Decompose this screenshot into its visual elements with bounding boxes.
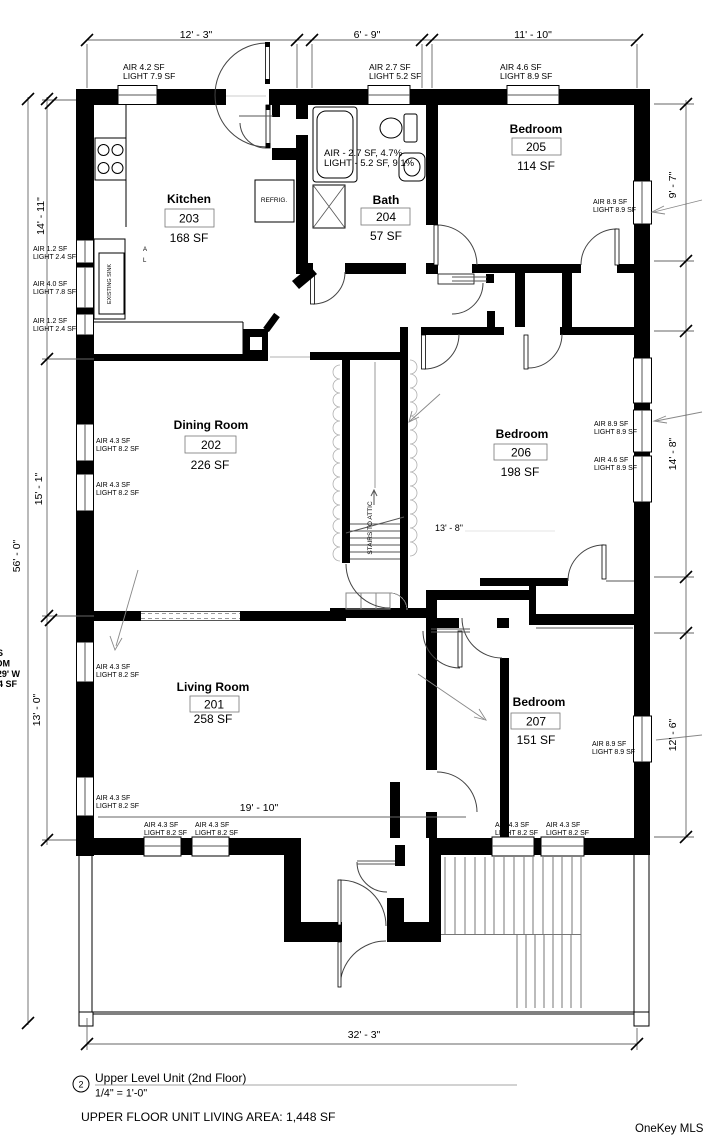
svg-text:AIR 4.3 SF: AIR 4.3 SF xyxy=(195,822,229,829)
svg-text:LIGHT 2.4 SF: LIGHT 2.4 SF xyxy=(33,254,76,261)
svg-text:AIR 4.3 SF: AIR 4.3 SF xyxy=(546,822,580,829)
svg-text:12' - 3": 12' - 3" xyxy=(180,29,213,41)
svg-text:LIGHT 8.2 SF: LIGHT 8.2 SF xyxy=(96,803,139,810)
svg-text:LIGHT 8.2 SF: LIGHT 8.2 SF xyxy=(96,490,139,497)
svg-text:202: 202 xyxy=(201,438,221,452)
svg-text:13' - 8": 13' - 8" xyxy=(435,523,463,533)
svg-text:Dining Room: Dining Room xyxy=(174,418,249,432)
svg-text:LIGHT 7.9 SF: LIGHT 7.9 SF xyxy=(123,71,175,81)
svg-text:AIR 4.3 SF: AIR 4.3 SF xyxy=(96,664,130,671)
svg-text:LIGHT - 5.2 SF, 9.1%: LIGHT - 5.2 SF, 9.1% xyxy=(324,158,415,169)
svg-text:204: 204 xyxy=(376,210,396,224)
svg-text:LIGHT 8.9 SF: LIGHT 8.9 SF xyxy=(594,429,637,436)
svg-text:29' W: 29' W xyxy=(0,669,20,679)
svg-text:REFRIG.: REFRIG. xyxy=(261,197,288,204)
svg-text:Bedroom: Bedroom xyxy=(510,122,563,136)
svg-text:Kitchen: Kitchen xyxy=(167,192,211,206)
svg-text:Bath: Bath xyxy=(373,193,400,207)
svg-text:Bedroom: Bedroom xyxy=(513,695,566,709)
svg-text:151 SF: 151 SF xyxy=(517,733,556,747)
svg-text:1/4" = 1'-0": 1/4" = 1'-0" xyxy=(95,1088,147,1100)
svg-text:AIR 4.0 SF: AIR 4.0 SF xyxy=(33,281,67,288)
svg-text:201: 201 xyxy=(204,698,224,712)
svg-text:LIGHT 8.2 SF: LIGHT 8.2 SF xyxy=(96,446,139,453)
svg-text:Bedroom: Bedroom xyxy=(496,427,549,441)
svg-text:2: 2 xyxy=(78,1080,83,1090)
svg-text:203: 203 xyxy=(179,212,199,226)
svg-text:AIR 1.2 SF: AIR 1.2 SF xyxy=(33,246,67,253)
svg-text:198 SF: 198 SF xyxy=(501,465,540,479)
svg-text:LIGHT 8.2 SF: LIGHT 8.2 SF xyxy=(195,830,238,837)
svg-text:13' - 0": 13' - 0" xyxy=(31,693,43,726)
svg-text:AIR 8.9 SF: AIR 8.9 SF xyxy=(592,741,626,748)
svg-text:LIGHT 8.2 SF: LIGHT 8.2 SF xyxy=(546,830,589,837)
svg-text:AIR 1.2 SF: AIR 1.2 SF xyxy=(33,318,67,325)
svg-text:258 SF: 258 SF xyxy=(194,712,233,726)
svg-text:AIR 4.3 SF: AIR 4.3 SF xyxy=(96,438,130,445)
svg-text:LIGHT 8.9 SF: LIGHT 8.9 SF xyxy=(593,207,636,214)
svg-text:AIR 8.9 SF: AIR 8.9 SF xyxy=(594,421,628,428)
svg-text:LIGHT 2.4 SF: LIGHT 2.4 SF xyxy=(33,326,76,333)
svg-text:57 SF: 57 SF xyxy=(370,229,402,243)
svg-text:LIGHT 8.9 SF: LIGHT 8.9 SF xyxy=(592,749,635,756)
svg-text:226 SF: 226 SF xyxy=(191,458,230,472)
svg-text:19' - 10": 19' - 10" xyxy=(240,802,279,814)
svg-text:AIR 4.6 SF: AIR 4.6 SF xyxy=(594,457,628,464)
svg-text:6' - 9": 6' - 9" xyxy=(354,29,381,41)
svg-text:LIGHT 8.9 SF: LIGHT 8.9 SF xyxy=(594,465,637,472)
svg-text:56' - 0": 56' - 0" xyxy=(11,539,23,572)
svg-text:UPPER FLOOR UNIT LIVING AREA:: UPPER FLOOR UNIT LIVING AREA: 1,448 SF xyxy=(81,1110,335,1124)
svg-text:EXISTING SINK: EXISTING SINK xyxy=(107,264,113,304)
svg-text:LIGHT 8.2 SF: LIGHT 8.2 SF xyxy=(495,830,538,837)
svg-text:14' - 11": 14' - 11" xyxy=(35,197,47,235)
svg-text:AIR 4.3 SF: AIR 4.3 SF xyxy=(96,795,130,802)
svg-text:LIGHT 7.8 SF: LIGHT 7.8 SF xyxy=(33,289,76,296)
svg-text:9' - 7": 9' - 7" xyxy=(667,171,679,198)
svg-text:LIGHT 8.9 SF: LIGHT 8.9 SF xyxy=(500,71,552,81)
svg-text:15' - 1": 15' - 1" xyxy=(33,472,45,505)
svg-text:AIR 4.3 SF: AIR 4.3 SF xyxy=(144,822,178,829)
svg-text:4 SF: 4 SF xyxy=(0,679,17,689)
svg-text:AIR 4.3 SF: AIR 4.3 SF xyxy=(96,482,130,489)
svg-text:114 SF: 114 SF xyxy=(517,159,555,173)
svg-text:LIGHT 5.2 SF: LIGHT 5.2 SF xyxy=(369,71,421,81)
svg-text:207: 207 xyxy=(526,715,546,729)
svg-text:Upper Level Unit (2nd Floor): Upper Level Unit (2nd Floor) xyxy=(95,1071,246,1085)
svg-text:32' - 3": 32' - 3" xyxy=(348,1029,381,1041)
svg-text:14' - 8": 14' - 8" xyxy=(667,437,679,470)
svg-text:A: A xyxy=(143,247,147,253)
svg-text:OM: OM xyxy=(0,659,10,669)
svg-text:OneKey MLS: OneKey MLS xyxy=(635,1123,704,1135)
svg-text:S: S xyxy=(0,648,3,658)
svg-text:LIGHT 8.2 SF: LIGHT 8.2 SF xyxy=(96,672,139,679)
svg-text:STAIRS TO ATTIC: STAIRS TO ATTIC xyxy=(367,501,374,555)
svg-text:205: 205 xyxy=(526,140,546,154)
svg-text:Living Room: Living Room xyxy=(177,680,250,694)
svg-text:AIR 8.9 SF: AIR 8.9 SF xyxy=(593,199,627,206)
svg-text:LIGHT 8.2 SF: LIGHT 8.2 SF xyxy=(144,830,187,837)
svg-text:206: 206 xyxy=(511,446,531,460)
svg-text:168 SF: 168 SF xyxy=(170,231,209,245)
svg-text:AIR 4.3 SF: AIR 4.3 SF xyxy=(495,822,529,829)
svg-text:12' - 6": 12' - 6" xyxy=(667,718,679,751)
svg-text:11' - 10": 11' - 10" xyxy=(514,29,552,41)
